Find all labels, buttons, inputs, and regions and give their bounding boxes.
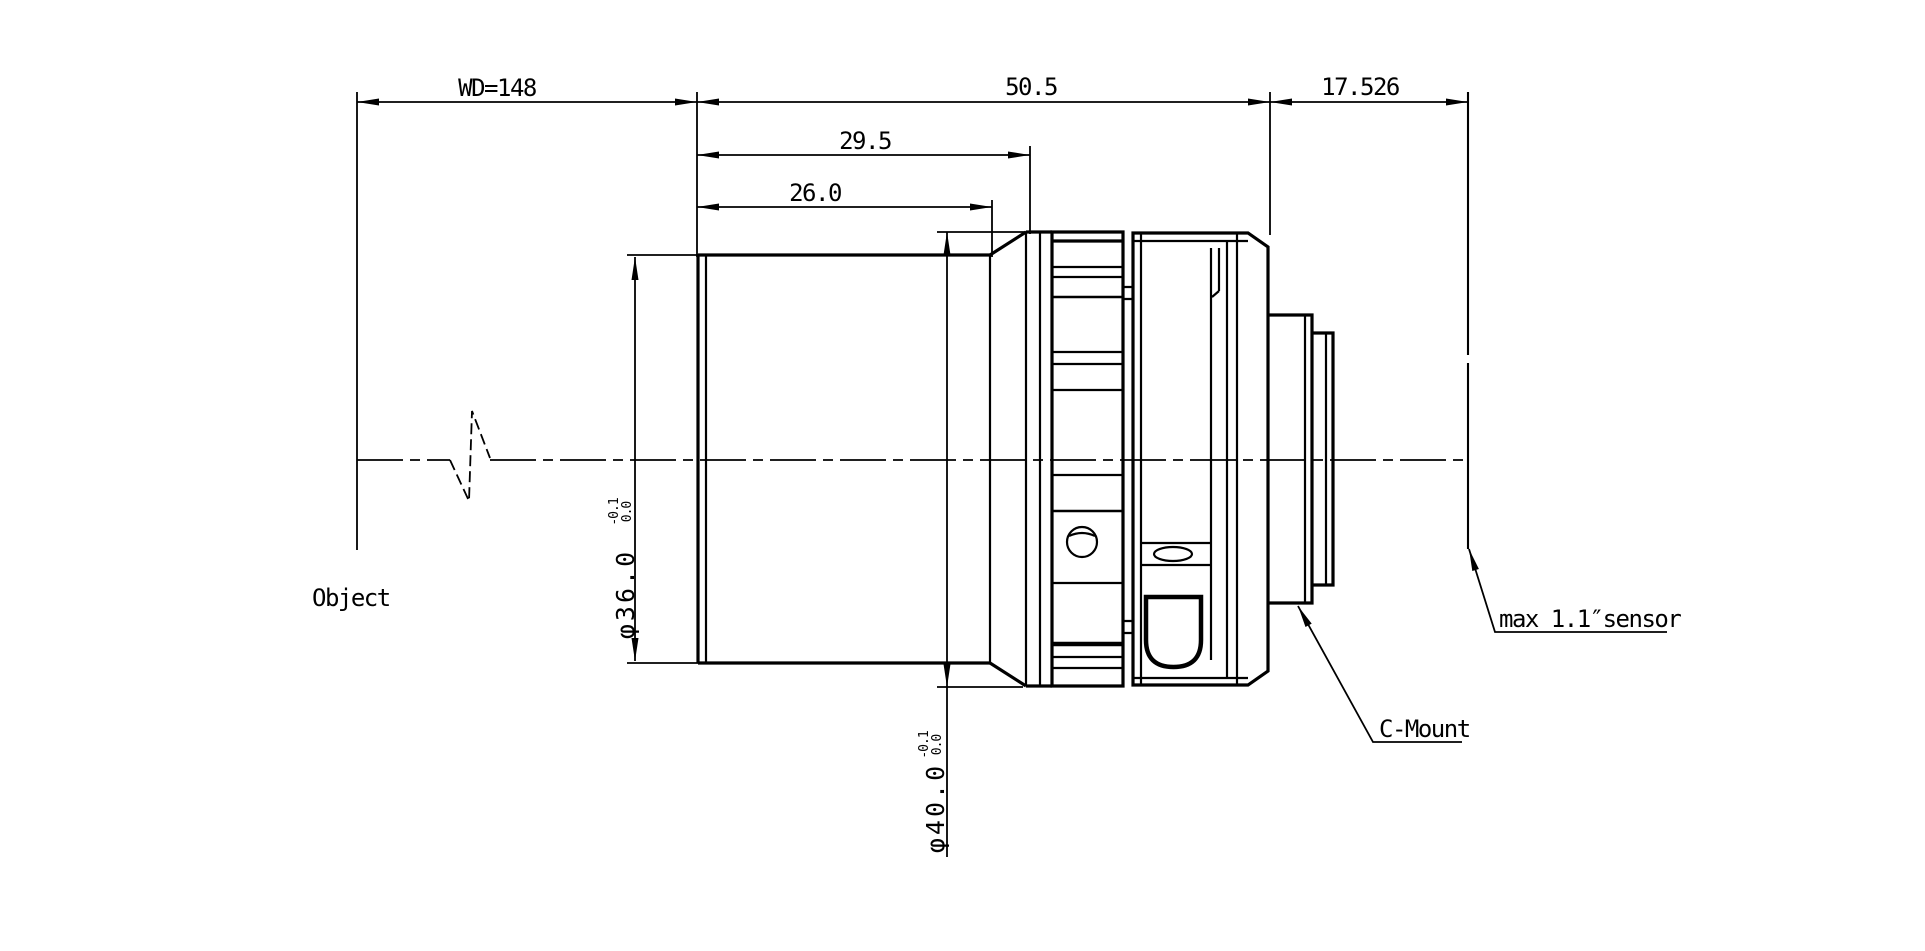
dimension-29-5: 29.5 [697,127,1030,159]
arrowhead [697,152,719,159]
dim-dia40-label: φ40.0 [921,763,950,853]
dimension-26-0: 26.0 [697,179,992,211]
dim-26-0-label: 26.0 [789,179,841,207]
arrowhead [632,638,639,661]
arrowhead [1298,606,1312,627]
arrowhead [357,99,379,106]
arrowhead [1008,152,1030,159]
dim-dia36-tol-upper: 0.0 [620,502,635,523]
arrowhead [970,204,992,211]
arrowhead [675,99,697,106]
arrowhead [1446,99,1468,106]
lens-technical-drawing: WD=148 50.5 17.526 29.5 26.0 φ36.0 0.0 -… [0,0,1925,951]
dim-dia36-label: φ36.0 [611,549,640,639]
c-mount-label: C-Mount [1379,715,1470,743]
focus-ring-knurl-bands [1052,297,1123,511]
aperture-ring-slot [1211,248,1219,660]
dimension-dia40: φ40.0 0.0 -0.1 [917,232,951,857]
dim-dia40-tol-lower: -0.1 [917,731,932,758]
sensor-label: max 1.1″sensor [1499,605,1681,633]
focus-ring-outline [1052,232,1123,686]
arrowhead [1469,549,1479,571]
focus-ring-knurl-lines [1052,267,1123,668]
arrowhead [1248,99,1270,106]
axis-break-symbol [450,411,490,501]
dim-dia36-tol-lower: -0.1 [607,498,622,525]
dimension-wd: WD=148 50.5 17.526 [357,73,1468,106]
object-label: Object [312,584,390,612]
arrowhead [1270,99,1292,106]
arrowhead [944,232,951,255]
index-window [1154,547,1192,561]
drawing-canvas: WD=148 50.5 17.526 29.5 26.0 φ36.0 0.0 -… [0,0,1925,951]
dimension-dia36: φ36.0 0.0 -0.1 [607,257,640,661]
sensor-callout: max 1.1″sensor [1469,549,1681,633]
arrowhead [697,204,719,211]
rear-step [1312,333,1333,585]
arrowhead [632,257,639,280]
aperture-ring-inner-lines [1133,233,1248,685]
set-screw [1067,527,1097,557]
arrowhead [697,99,719,106]
lock-tab [1146,597,1201,667]
dim-17-526-label: 17.526 [1321,73,1399,101]
dim-29-5-label: 29.5 [839,127,891,155]
lens-body [698,232,1333,686]
cone-transition [990,232,1026,686]
c-mount-callout: C-Mount [1298,606,1470,743]
dim-wd-label: WD=148 [458,74,536,102]
set-screw-slot [1069,533,1095,536]
dim-dia40-tol-upper: 0.0 [930,735,945,756]
arrowhead [944,664,951,687]
dim-50-5-label: 50.5 [1005,73,1057,101]
